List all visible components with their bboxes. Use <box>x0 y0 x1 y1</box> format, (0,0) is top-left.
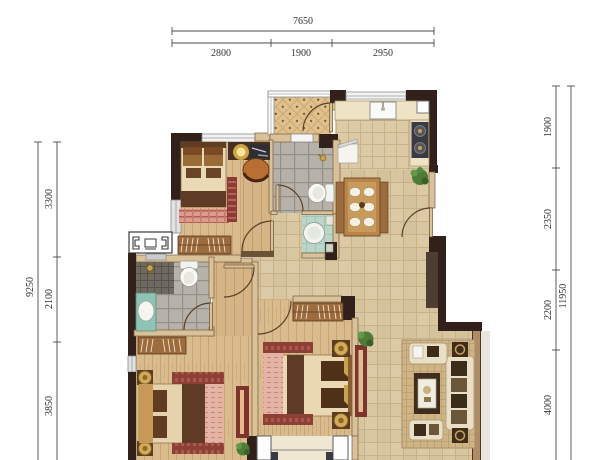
svg-text:4000: 4000 <box>543 395 554 415</box>
svg-text:2800: 2800 <box>211 48 231 59</box>
svg-text:2100: 2100 <box>44 289 55 309</box>
svg-text:11950: 11950 <box>558 284 569 309</box>
svg-text:3300: 3300 <box>44 189 55 209</box>
svg-text:7650: 7650 <box>293 16 313 27</box>
svg-text:3850: 3850 <box>44 396 55 416</box>
svg-text:1900: 1900 <box>543 117 554 137</box>
svg-text:1900: 1900 <box>291 48 311 59</box>
svg-text:2200: 2200 <box>543 300 554 320</box>
svg-text:2950: 2950 <box>373 48 393 59</box>
svg-text:9250: 9250 <box>25 277 36 297</box>
svg-text:2350: 2350 <box>543 209 554 229</box>
